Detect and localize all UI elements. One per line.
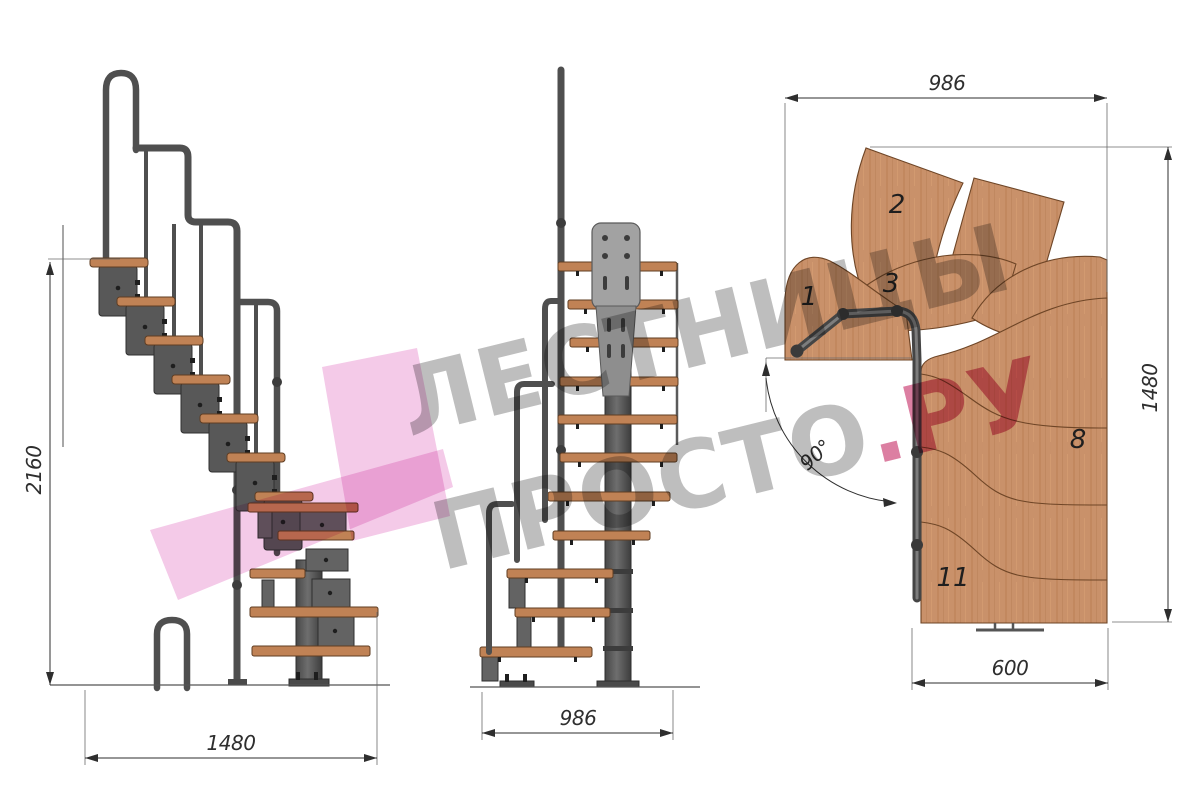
module xyxy=(509,578,525,608)
dim-label-1480-plan: 1480 xyxy=(1138,364,1162,413)
dim-label-986-plan: 986 xyxy=(929,71,966,95)
plan-base-plate xyxy=(976,623,1044,630)
drawing-canvas: 2160 1480 xyxy=(0,0,1200,807)
dimension-600: 600 xyxy=(912,628,1108,690)
handrail-hairpin-low xyxy=(157,620,187,688)
tread-number-1: 1 xyxy=(801,282,818,312)
module xyxy=(517,617,531,647)
angle-annotation: 90° xyxy=(762,358,912,507)
rail-joint xyxy=(232,580,242,590)
mounting-plate xyxy=(592,223,640,396)
angle-label: 90° xyxy=(795,435,836,476)
handrail-hairpin-top xyxy=(106,73,136,262)
dim-label-986-front: 986 xyxy=(560,706,597,730)
dim-label-1480-side: 1480 xyxy=(207,731,256,755)
dimension-986-front: 986 xyxy=(482,690,673,740)
front-elevation-view: 986 xyxy=(470,70,700,740)
tread-number-2: 2 xyxy=(889,190,906,220)
dim-label-600: 600 xyxy=(992,656,1029,680)
module xyxy=(482,656,498,681)
post-base xyxy=(228,679,247,685)
dimension-2160: 2160 xyxy=(22,259,120,685)
base-flange xyxy=(597,681,639,687)
plan-view: 90° 1 2 3 8 11 986 1480 xyxy=(762,71,1172,690)
tread-number-3: 3 xyxy=(883,269,900,299)
technical-drawing: 2160 1480 xyxy=(0,0,1200,807)
tread-number-11: 11 xyxy=(936,563,969,593)
rail-joint xyxy=(272,377,282,387)
tread-number-8: 8 xyxy=(1070,425,1087,455)
handrail-front-1 xyxy=(545,301,558,520)
dim-label-2160: 2160 xyxy=(22,446,46,495)
